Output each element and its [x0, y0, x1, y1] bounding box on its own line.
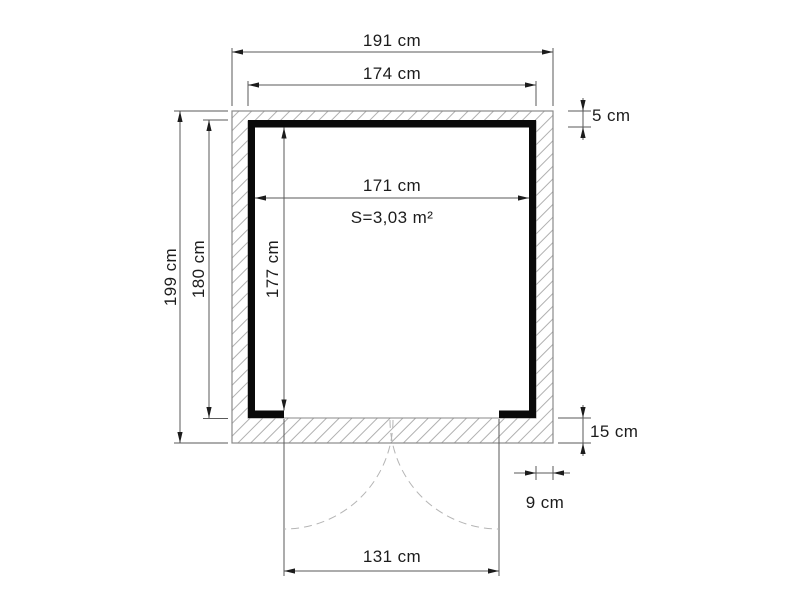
- dim-label-room-width: 171 cm: [363, 176, 421, 195]
- dim-label-frame-width: 174 cm: [363, 64, 421, 83]
- floor-plan-svg: 191 cm 174 cm 199 cm 180 cm 171 cm 177 c…: [0, 0, 800, 600]
- wall-liner-left: [248, 120, 255, 418]
- dim-label-outer-width: 191 cm: [363, 31, 421, 50]
- wall-liner-bottom-right-stub: [499, 411, 536, 419]
- dim-label-outer-depth: 199 cm: [161, 248, 180, 306]
- dim-label-right-top: 5 cm: [592, 106, 630, 125]
- wall-liner-top: [248, 120, 536, 128]
- interior-floor: [248, 121, 536, 418]
- floor-plan-drawing: 191 cm 174 cm 199 cm 180 cm 171 cm 177 c…: [0, 0, 800, 600]
- dim-label-frame-depth: 180 cm: [189, 240, 208, 298]
- dim-label-room-depth: 177 cm: [263, 240, 282, 298]
- dim-label-door-width: 131 cm: [363, 547, 421, 566]
- floor-area-label: S=3,03 m²: [351, 208, 434, 227]
- dim-label-right-bottom: 15 cm: [590, 422, 638, 441]
- dim-label-wall-thickness: 9 cm: [526, 493, 564, 512]
- wall-liner-bottom-left-stub: [248, 411, 284, 419]
- wall-liner-right: [529, 120, 536, 418]
